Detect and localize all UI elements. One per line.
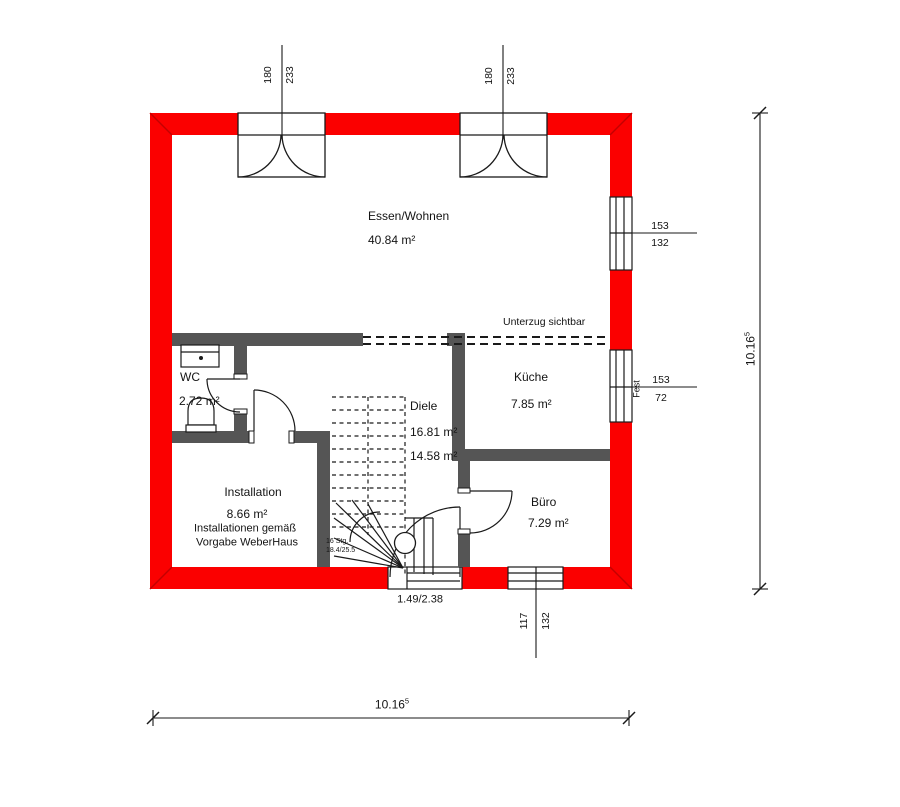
column-symbol	[395, 533, 416, 554]
room-area-installation: 8.66 m²	[227, 508, 268, 520]
window-bottom	[508, 567, 563, 589]
dim-window-upper-width: 153	[651, 221, 669, 232]
dim-window-bottom-height: 132	[541, 612, 552, 630]
dim-door-left-height: 233	[285, 66, 296, 84]
dim-total-width: 10.165	[375, 698, 409, 711]
room-label-buero: Büro	[531, 496, 556, 508]
buero-door	[470, 491, 512, 533]
room-label-kueche: Küche	[514, 371, 548, 383]
room-area-wc: 2.72 m²	[179, 395, 220, 407]
room-label-diele: Diele	[410, 400, 437, 412]
entry-door-size-label: 1.49/2.38	[397, 595, 443, 606]
room-area-essen-wohnen: 40.84 m²	[368, 234, 415, 246]
dim-door-right-width: 180	[484, 67, 495, 85]
dim-total-height-value: 10.16	[744, 336, 758, 366]
dim-window-upper-height: 132	[651, 238, 669, 249]
floor-plan-canvas: Essen/Wohnen 40.84 m² WC 2.72 m² Diele 1…	[0, 0, 900, 807]
installation-note-2: Vorgabe WeberHaus	[196, 538, 298, 549]
room-area-buero: 7.29 m²	[528, 517, 569, 529]
stair-ratio-label: 18.4/25.5	[326, 547, 355, 554]
room-label-wc: WC	[180, 371, 200, 383]
beam-annotation: Unterzug sichtbar	[503, 317, 585, 328]
room-label-essen-wohnen: Essen/Wohnen	[368, 210, 449, 222]
floor-plan-drawing	[0, 0, 900, 807]
dim-total-height-sup: 5	[743, 332, 752, 336]
dim-window-bottom-width: 117	[519, 613, 530, 630]
room-area-kueche: 7.85 m²	[511, 398, 552, 410]
dim-window-lower-width: 153	[652, 375, 670, 386]
fixed-glazing-label: Fest	[633, 380, 642, 398]
dim-total-width-value: 10.16	[375, 698, 405, 712]
installation-note-1: Installationen gemäß	[194, 524, 296, 535]
room-label-installation: Installation	[224, 486, 281, 498]
dim-window-lower-height: 72	[655, 393, 667, 404]
window-right-lower	[610, 350, 632, 422]
dim-total-height: 10.165	[744, 332, 757, 366]
dim-door-right-height: 233	[506, 67, 517, 85]
dim-door-left-width: 180	[263, 66, 274, 84]
washbasin	[181, 345, 219, 367]
room-area-diele-1: 16.81 m²	[410, 426, 457, 438]
dim-total-width-sup: 5	[405, 697, 409, 706]
installation-door	[254, 390, 295, 431]
room-area-diele-2: 14.58 m²	[410, 450, 457, 462]
stair-steps-label: 16 Stg.	[326, 538, 348, 545]
beam-dashed-lines	[363, 337, 610, 344]
